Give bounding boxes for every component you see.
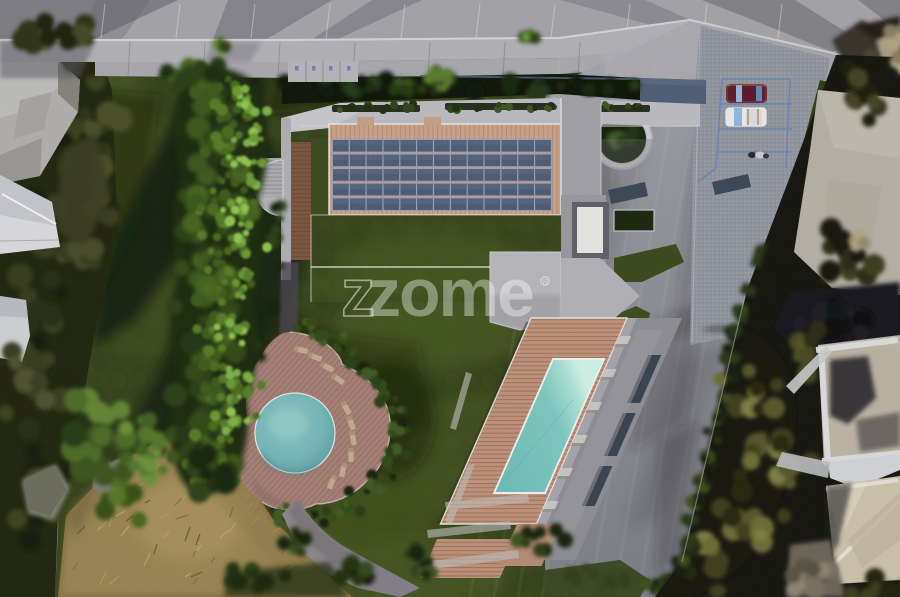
svg-text:R: R: [543, 279, 548, 286]
svg-text:zome: zome: [367, 255, 533, 331]
